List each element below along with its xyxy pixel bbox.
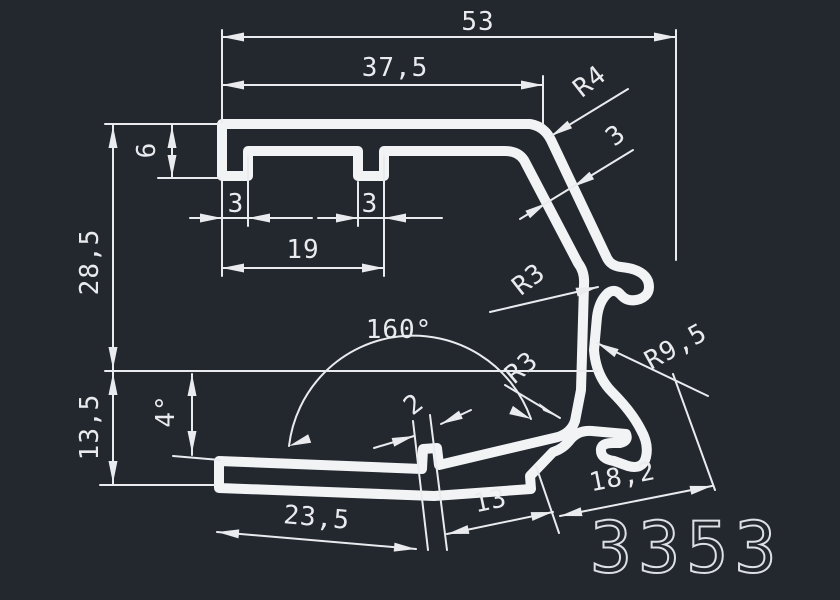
cad-drawing-canvas: 53 37,5 6 28,5 13,5 4° 160° 19 3 3 R4 3 … xyxy=(0,0,840,600)
dim-label-53: 53 xyxy=(461,7,494,37)
part-number-label: 3353 xyxy=(590,507,783,589)
dim-label-28-5: 28,5 xyxy=(75,229,105,296)
dim-label-19: 19 xyxy=(286,235,319,265)
dim-label-4deg: 4° xyxy=(151,394,181,427)
dim-label-160deg: 160° xyxy=(366,315,433,345)
cad-viewport: 53 37,5 6 28,5 13,5 4° 160° 19 3 3 R4 3 … xyxy=(0,0,840,600)
dim-label-13-5: 13,5 xyxy=(75,394,105,461)
dim-label-3-left: 3 xyxy=(228,189,245,219)
dim-label-3-right: 3 xyxy=(362,189,379,219)
dim-label-6: 6 xyxy=(132,142,162,159)
dim-label-37-5: 37,5 xyxy=(362,53,429,83)
dim-label-23-5: 23,5 xyxy=(282,500,351,536)
